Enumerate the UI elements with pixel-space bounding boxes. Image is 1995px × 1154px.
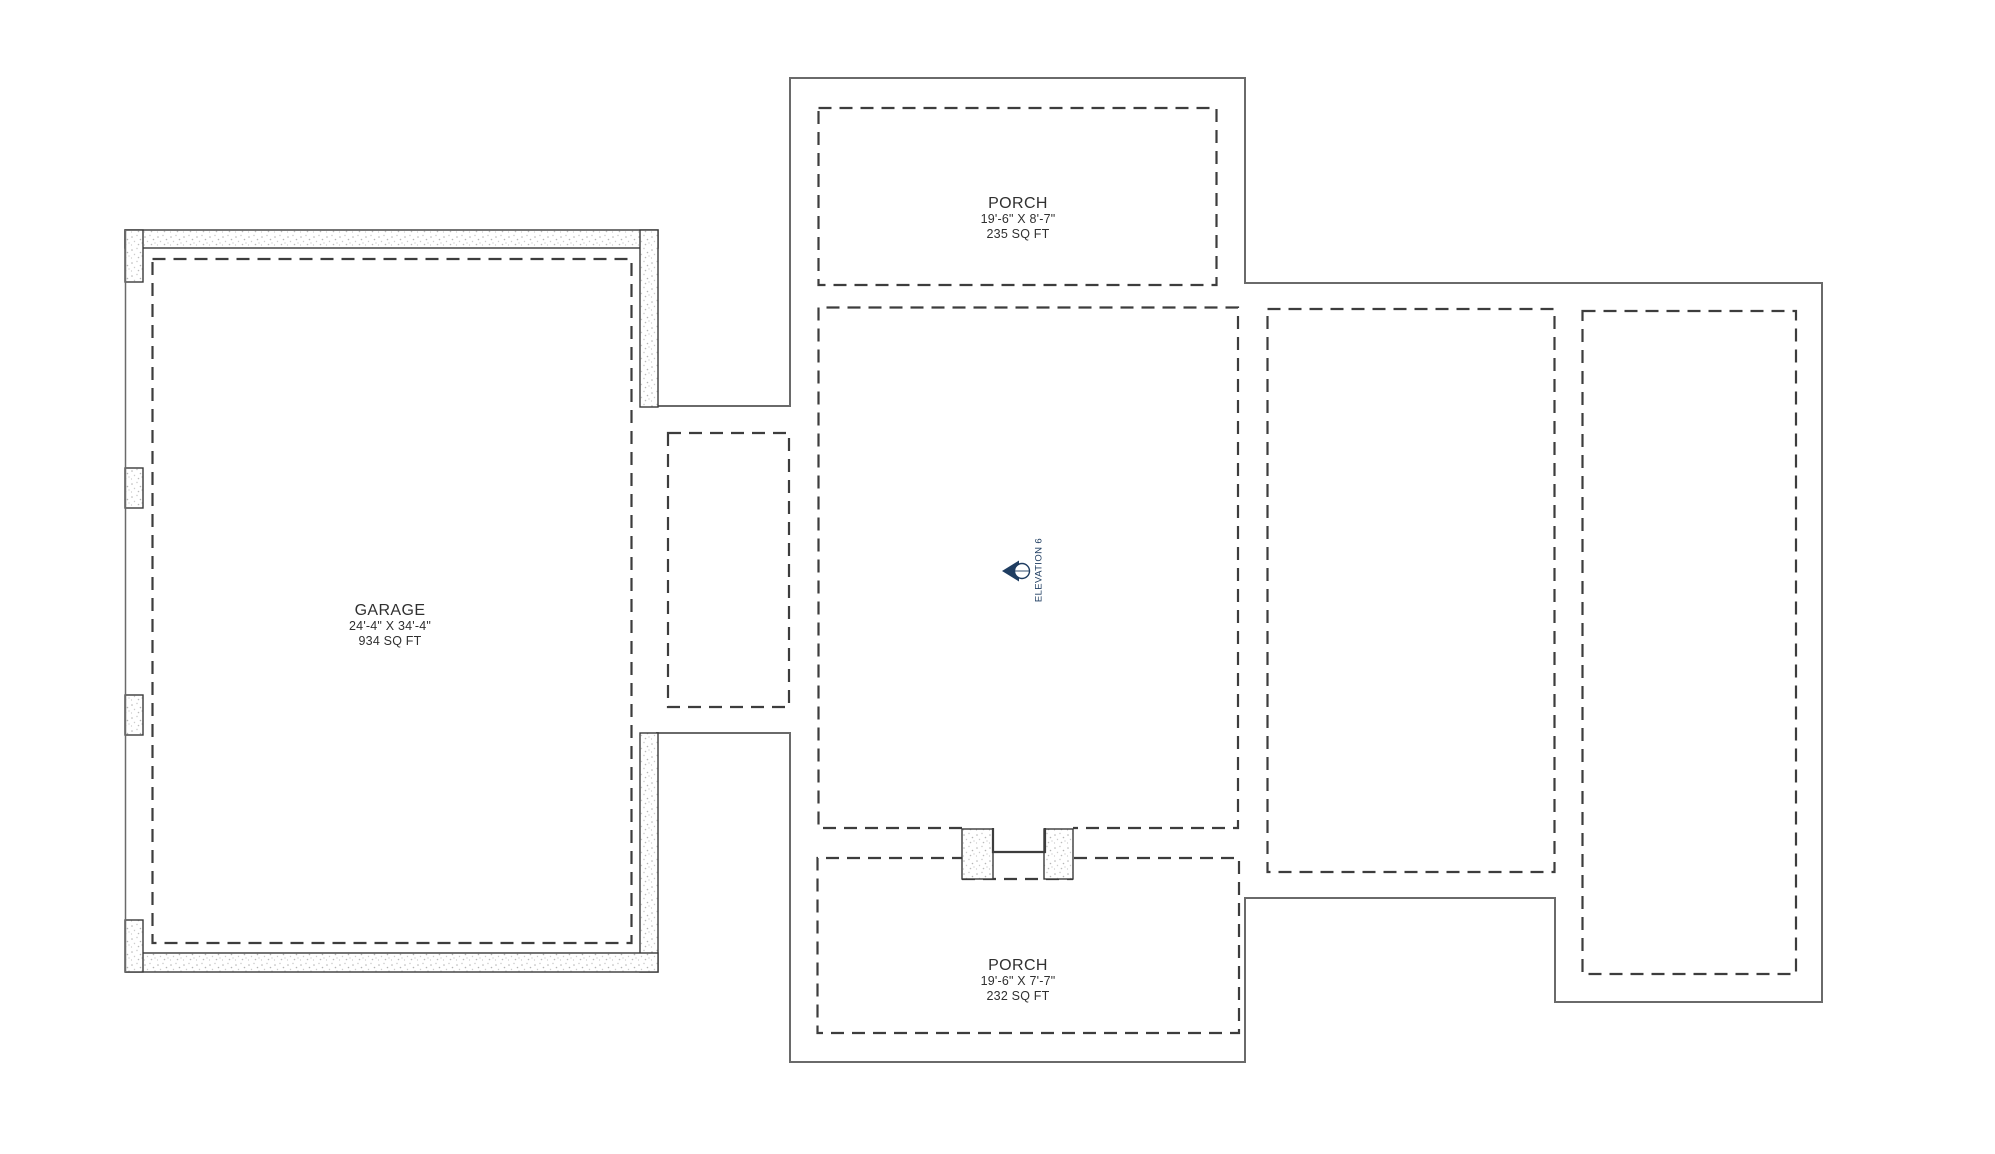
bottom-porch-name: PORCH <box>981 957 1056 974</box>
top-porch-dimensions: 19'-6" X 8'-7" <box>981 213 1056 227</box>
elevation-marker-icon <box>1002 561 1030 582</box>
top-porch-label: PORCH 19'-6" X 8'-7" 235 SQ FT <box>981 195 1056 241</box>
garage-wall-top <box>125 230 658 248</box>
garage-wall-bottom <box>126 953 658 972</box>
garage-pilaster-left-lower <box>125 695 143 735</box>
garage-name: GARAGE <box>349 602 431 619</box>
garage-pilaster-top-left <box>125 230 143 282</box>
garage-dimensions: 24'-4" X 34'-4" <box>349 620 431 634</box>
slab-outlines <box>818 108 1797 1033</box>
connector-slab-dashed <box>668 433 789 707</box>
garage-label: GARAGE 24'-4" X 34'-4" 934 SQ FT <box>349 602 431 648</box>
doorway-pier-left <box>962 829 993 879</box>
doorway-step-notch <box>993 828 1045 852</box>
top-porch-area: 235 SQ FT <box>981 228 1056 242</box>
garage-wall-right-lower <box>640 733 658 972</box>
bottom-porch-label: PORCH 19'-6" X 7'-7" 232 SQ FT <box>981 957 1056 1003</box>
floor-plan-canvas: GARAGE 24'-4" X 34'-4" 934 SQ FT PORCH 1… <box>0 0 1995 1154</box>
porch-doorway-structure <box>962 828 1073 879</box>
garage-pilaster-left-upper <box>125 468 143 508</box>
doorway-pier-right <box>1044 829 1073 879</box>
middle-right-room-dashed <box>1268 309 1555 872</box>
elevation-marker-label: ELEVATION 6 <box>1034 538 1045 602</box>
top-porch-name: PORCH <box>981 195 1056 212</box>
bottom-porch-area: 232 SQ FT <box>981 990 1056 1004</box>
right-room-dashed <box>1583 311 1797 974</box>
bottom-porch-dimensions: 19'-6" X 7'-7" <box>981 975 1056 989</box>
garage-area: 934 SQ FT <box>349 635 431 649</box>
garage-wall-right-upper <box>640 230 658 407</box>
garage-pilaster-bottom-left <box>125 920 143 972</box>
bottom-porch-dashed <box>818 858 1240 1033</box>
